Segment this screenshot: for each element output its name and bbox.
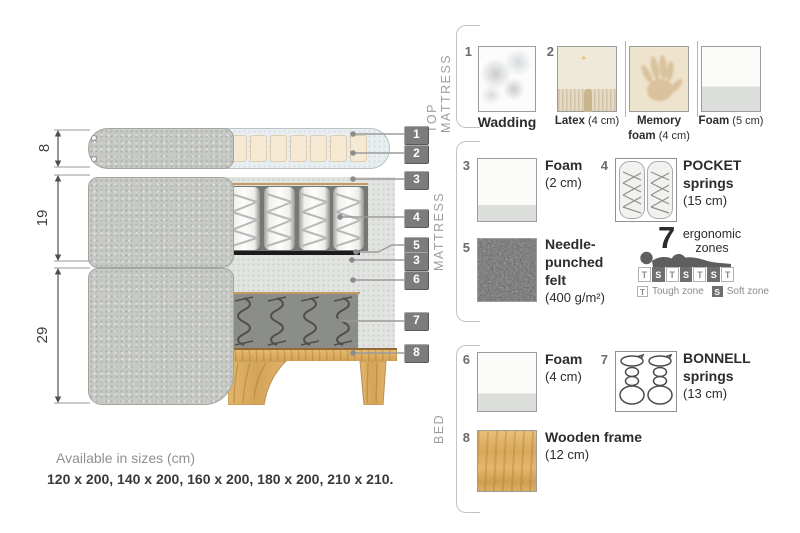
foam-5cm-name: Foam: [699, 115, 730, 127]
item-number-5: 5: [456, 240, 470, 255]
wooden-frame-size: (12 cm): [545, 447, 685, 464]
mattress-button: [91, 135, 97, 141]
bonnell-springs-label: BONNELL springs (13 cm): [683, 350, 763, 402]
item-number-6: 6: [456, 352, 470, 367]
zone-box-tough: T: [693, 267, 706, 282]
latex-caption: Latex (4 cm): [549, 114, 625, 129]
needle-felt-size: (400 g/m²): [545, 290, 617, 307]
sleeping-person-icon: [637, 249, 733, 268]
callout-tag-3b: 3: [404, 252, 429, 271]
zone-box-soft: S: [652, 267, 665, 282]
tough-zone-key: T: [637, 286, 648, 297]
top-mattress-cover: [88, 128, 234, 169]
needle-felt-label: Needle-punched felt (400 g/m²): [545, 236, 617, 306]
dimension-bed: 29: [34, 320, 54, 350]
callout-tag-6: 6: [404, 271, 429, 290]
item-number-7: 7: [594, 352, 608, 367]
soft-zone-key: S: [712, 286, 723, 297]
foam-4cm-swatch: [477, 352, 537, 412]
wadding-name: Wadding: [478, 114, 537, 130]
foam-2cm-size: (2 cm): [545, 175, 615, 192]
latex-block: [250, 135, 267, 162]
foam-4cm-size: (4 cm): [545, 369, 615, 386]
zone-box-soft: S: [707, 267, 720, 282]
callout-tag-8: 8: [404, 344, 429, 363]
bed-legs: [228, 361, 397, 405]
swatch-divider: [625, 41, 626, 117]
bonnell-springs-name: BONNELL springs: [683, 350, 763, 386]
section-label-bed: BED: [424, 345, 454, 513]
bonnell-springs-icon: [615, 351, 677, 412]
callout-tag-7: 7: [404, 312, 429, 331]
foam-2cm-swatch: [477, 158, 537, 222]
latex-block: [270, 135, 287, 162]
needle-felt-swatch: [477, 238, 537, 302]
zone-box-soft: S: [680, 267, 693, 282]
bonnell-springs-size: (13 cm): [683, 386, 763, 403]
soft-zone-label: Soft zone: [727, 286, 769, 297]
memory-foam-size: (4 cm): [659, 130, 690, 142]
latex-blocks-row: [230, 135, 367, 162]
sizes-title: Available in sizes (cm): [56, 450, 195, 466]
bed-cross-section: [88, 268, 397, 405]
pocket-springs-size: (15 cm): [683, 193, 761, 210]
section-label-mattress: MATTRESS: [424, 141, 454, 322]
latex-name: Latex: [555, 115, 585, 127]
bonnell-springs-cutaway: [228, 294, 358, 348]
pocket-springs-icon: [615, 158, 677, 222]
latex-sparkle-icon: ✦: [580, 53, 588, 64]
latex-block: [330, 135, 347, 162]
latex-block: [310, 135, 327, 162]
item-number-4: 4: [594, 158, 608, 173]
wooden-frame-name: Wooden frame: [545, 429, 685, 447]
item-number-2: 2: [540, 44, 554, 59]
memory-foam-swatch: [629, 46, 689, 112]
wooden-frame-label: Wooden frame (12 cm): [545, 429, 685, 464]
mattress-cover: [88, 177, 234, 268]
foam-5cm-caption: Foam (5 cm): [693, 114, 769, 129]
zone-box-tough: T: [721, 267, 734, 282]
needle-felt-strip: [228, 251, 360, 255]
callout-tag-1: 1: [404, 126, 429, 145]
memory-foam-caption: Memory foam (4 cm): [625, 114, 693, 144]
pocket-springs-cutaway: [228, 186, 368, 251]
ergonomic-zones-group: 7 ergonomic zones T S T S T S T T Tough …: [630, 220, 770, 302]
zone-box-tough: T: [638, 267, 651, 282]
dimension-top-mattress: 8: [36, 133, 56, 163]
latex-swatch: ✦: [557, 46, 617, 112]
item-number-8: 8: [456, 430, 470, 445]
top-mattress-cross-section: [88, 128, 390, 169]
callout-tag-4: 4: [404, 209, 429, 228]
needle-felt-name: Needle-punched felt: [545, 236, 617, 290]
callout-tag-2: 2: [404, 145, 429, 164]
wooden-frame-plank: [228, 348, 397, 361]
swatch-divider: [697, 41, 698, 117]
latex-size: (4 cm): [588, 115, 619, 127]
wadding-swatch: [478, 46, 536, 112]
item-number-1: 1: [458, 44, 472, 59]
latex-block: [350, 135, 367, 162]
foam-5cm-size: (5 cm): [732, 115, 763, 127]
item-number-3: 3: [456, 158, 470, 173]
wadding-caption: Wadding: [468, 114, 546, 132]
latex-block: [290, 135, 307, 162]
zone-box-tough: T: [666, 267, 679, 282]
top-mattress-bracket: [456, 25, 480, 128]
foam-5cm-swatch: [701, 46, 761, 112]
hand-imprint-icon: [630, 47, 688, 111]
mattress-cross-section: [88, 177, 395, 268]
zone-row: T S T S T S T: [638, 267, 734, 282]
tough-zone-label: Tough zone: [652, 286, 704, 297]
pocket-springs-label: POCKET springs (15 cm): [683, 157, 761, 209]
callout-tag-3: 3: [404, 171, 429, 190]
wooden-frame-swatch: [477, 430, 537, 492]
bed-cover: [88, 268, 234, 405]
dimension-mattress: 19: [34, 203, 54, 233]
sizes-list: 120 x 200, 140 x 200, 160 x 200, 180 x 2…: [47, 471, 393, 487]
felt-top-line: [228, 183, 368, 185]
section-label-top-mattress: TOP MATTRESS: [424, 20, 454, 133]
zone-legend: T Tough zone S Soft zone: [637, 286, 769, 297]
latex-notch: [584, 89, 592, 112]
mattress-button: [91, 156, 97, 162]
pocket-springs-name: POCKET springs: [683, 157, 761, 193]
mattress-construction-infographic: 8 19 29 1 2 3 4 5 3 6 7 8 TOP MATTRESS M…: [0, 0, 800, 533]
